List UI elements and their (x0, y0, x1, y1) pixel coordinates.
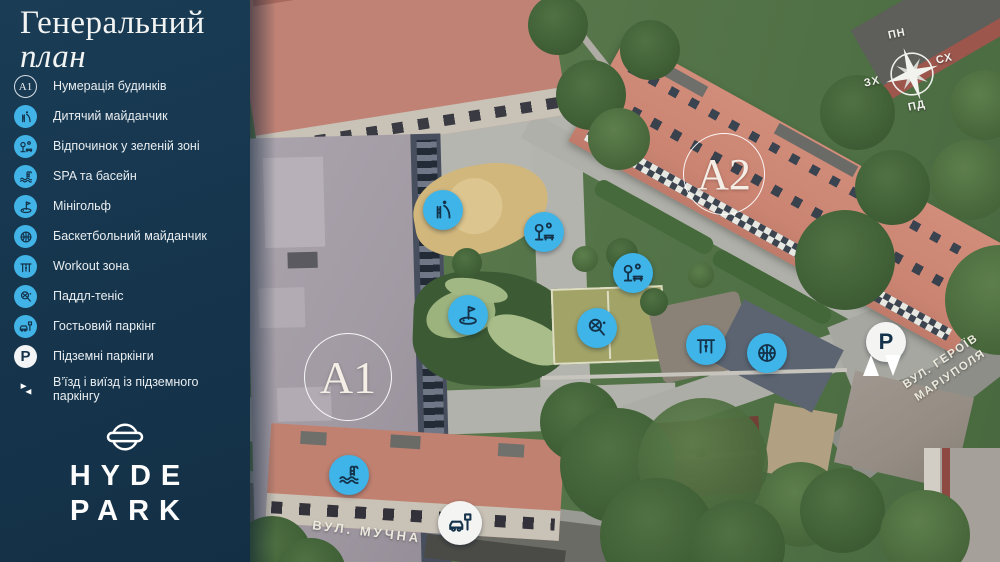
logo-line1: HYDE (0, 459, 250, 494)
underground-parking-icon: P (14, 345, 37, 368)
legend-label: Паддл-теніс (53, 289, 123, 303)
tree (528, 0, 588, 55)
legend-item-spa: SPA та басейн (14, 165, 242, 188)
parking-letter: P (20, 349, 30, 364)
minigolf-icon (455, 302, 481, 328)
spa-pool-icon (14, 165, 37, 188)
legend-item-playground: Дитячий майданчик (14, 105, 242, 128)
legend-item-minigolf: Мінігольф (14, 195, 242, 218)
legend-item-underground-parking: P Підземні паркінги (14, 345, 242, 368)
legend-list: A1 Нумерація будинків Дитячий майданчик … (14, 75, 242, 411)
tree (855, 150, 930, 225)
shrub (572, 246, 598, 272)
shrub (640, 288, 668, 316)
playground-icon (430, 197, 456, 223)
playground-marker[interactable] (423, 190, 463, 230)
page-title-line1: Генеральний (20, 6, 205, 40)
hyde-park-logo: HYDE PARK (0, 420, 250, 530)
legend-label: Гостьовий паркінг (53, 319, 156, 333)
guest-parking-marker[interactable] (438, 501, 482, 545)
guest-parking-icon (446, 509, 475, 538)
minigolf-marker[interactable] (448, 295, 488, 335)
spa-pool-icon (336, 462, 362, 488)
workout-icon (14, 255, 37, 278)
tree (588, 108, 650, 170)
legend-label: Дитячий майданчик (53, 109, 168, 123)
entry-exit-icon (14, 378, 37, 401)
building-bottom (265, 423, 565, 541)
tree (800, 468, 885, 553)
logo-line2: PARK (0, 494, 250, 529)
legend-item-workout: Workout зона (14, 255, 242, 278)
compass-south-label: ПД (907, 98, 927, 113)
masterplan-page: Генеральний план A1 Нумерація будинків Д… (0, 0, 1000, 562)
entry-exit-icon (860, 352, 904, 378)
green-rest-icon (531, 219, 557, 245)
legend-label: SPA та басейн (53, 169, 137, 183)
basketball-icon (14, 225, 37, 248)
legend-label: В’їзд і виїзд із підземного паркінгу (53, 375, 213, 404)
tree (930, 140, 1000, 220)
green-rest-icon (620, 260, 646, 286)
legend-item-paddle: Паддл-теніс (14, 285, 242, 308)
guest-parking-icon (14, 315, 37, 338)
a1-badge-text: A1 (19, 81, 32, 93)
basketball-icon (754, 340, 780, 366)
entry-exit-marker[interactable] (860, 352, 904, 378)
legend-item-numbering: A1 Нумерація будинків (14, 75, 242, 98)
tree (620, 20, 680, 80)
legend-label: Баскетбольний майданчик (53, 229, 207, 243)
legend-sidebar: Генеральний план A1 Нумерація будинків Д… (0, 0, 250, 562)
green-rest-marker-2[interactable] (613, 253, 653, 293)
workout-icon (693, 332, 719, 358)
a1-badge-icon: A1 (14, 75, 37, 98)
page-title: Генеральний план (20, 6, 205, 75)
legend-item-basketball: Баскетбольний майданчик (14, 225, 242, 248)
legend-item-guest-parking: Гостьовий паркінг (14, 315, 242, 338)
paddle-tennis-icon (14, 285, 37, 308)
spa-marker[interactable] (329, 455, 369, 495)
paddle-tennis-icon (584, 315, 610, 341)
legend-item-entry-exit: В’їзд і виїзд із підземного паркінгу (14, 375, 242, 404)
minigolf-icon (14, 195, 37, 218)
page-title-line2: план (20, 40, 205, 74)
shrub (688, 262, 714, 288)
green-rest-icon (14, 135, 37, 158)
compass-rose (880, 42, 944, 106)
playground-icon (14, 105, 37, 128)
site-plan-map[interactable]: A2 A1 P ПН СХ ЗХ ПД ВУЛ. МУЧН (250, 0, 1000, 562)
legend-label: Підземні паркінги (53, 349, 154, 363)
basketball-marker[interactable] (747, 333, 787, 373)
compass-star-icon (880, 42, 944, 106)
legend-label: Workout зона (53, 259, 129, 273)
legend-label: Відпочинок у зеленій зоні (53, 139, 200, 153)
legend-item-green-rest: Відпочинок у зеленій зоні (14, 135, 242, 158)
legend-label: Нумерація будинків (53, 79, 167, 93)
tree (950, 70, 1000, 140)
shrub (452, 248, 482, 278)
building-label-a1: A1 (304, 333, 392, 421)
workout-marker[interactable] (686, 325, 726, 365)
legend-label: Мінігольф (53, 199, 111, 213)
building-label-a2: A2 (683, 133, 765, 215)
roundel-icon (102, 420, 148, 454)
green-rest-marker-1[interactable] (524, 212, 564, 252)
tree (795, 210, 895, 310)
paddle-marker[interactable] (577, 308, 617, 348)
